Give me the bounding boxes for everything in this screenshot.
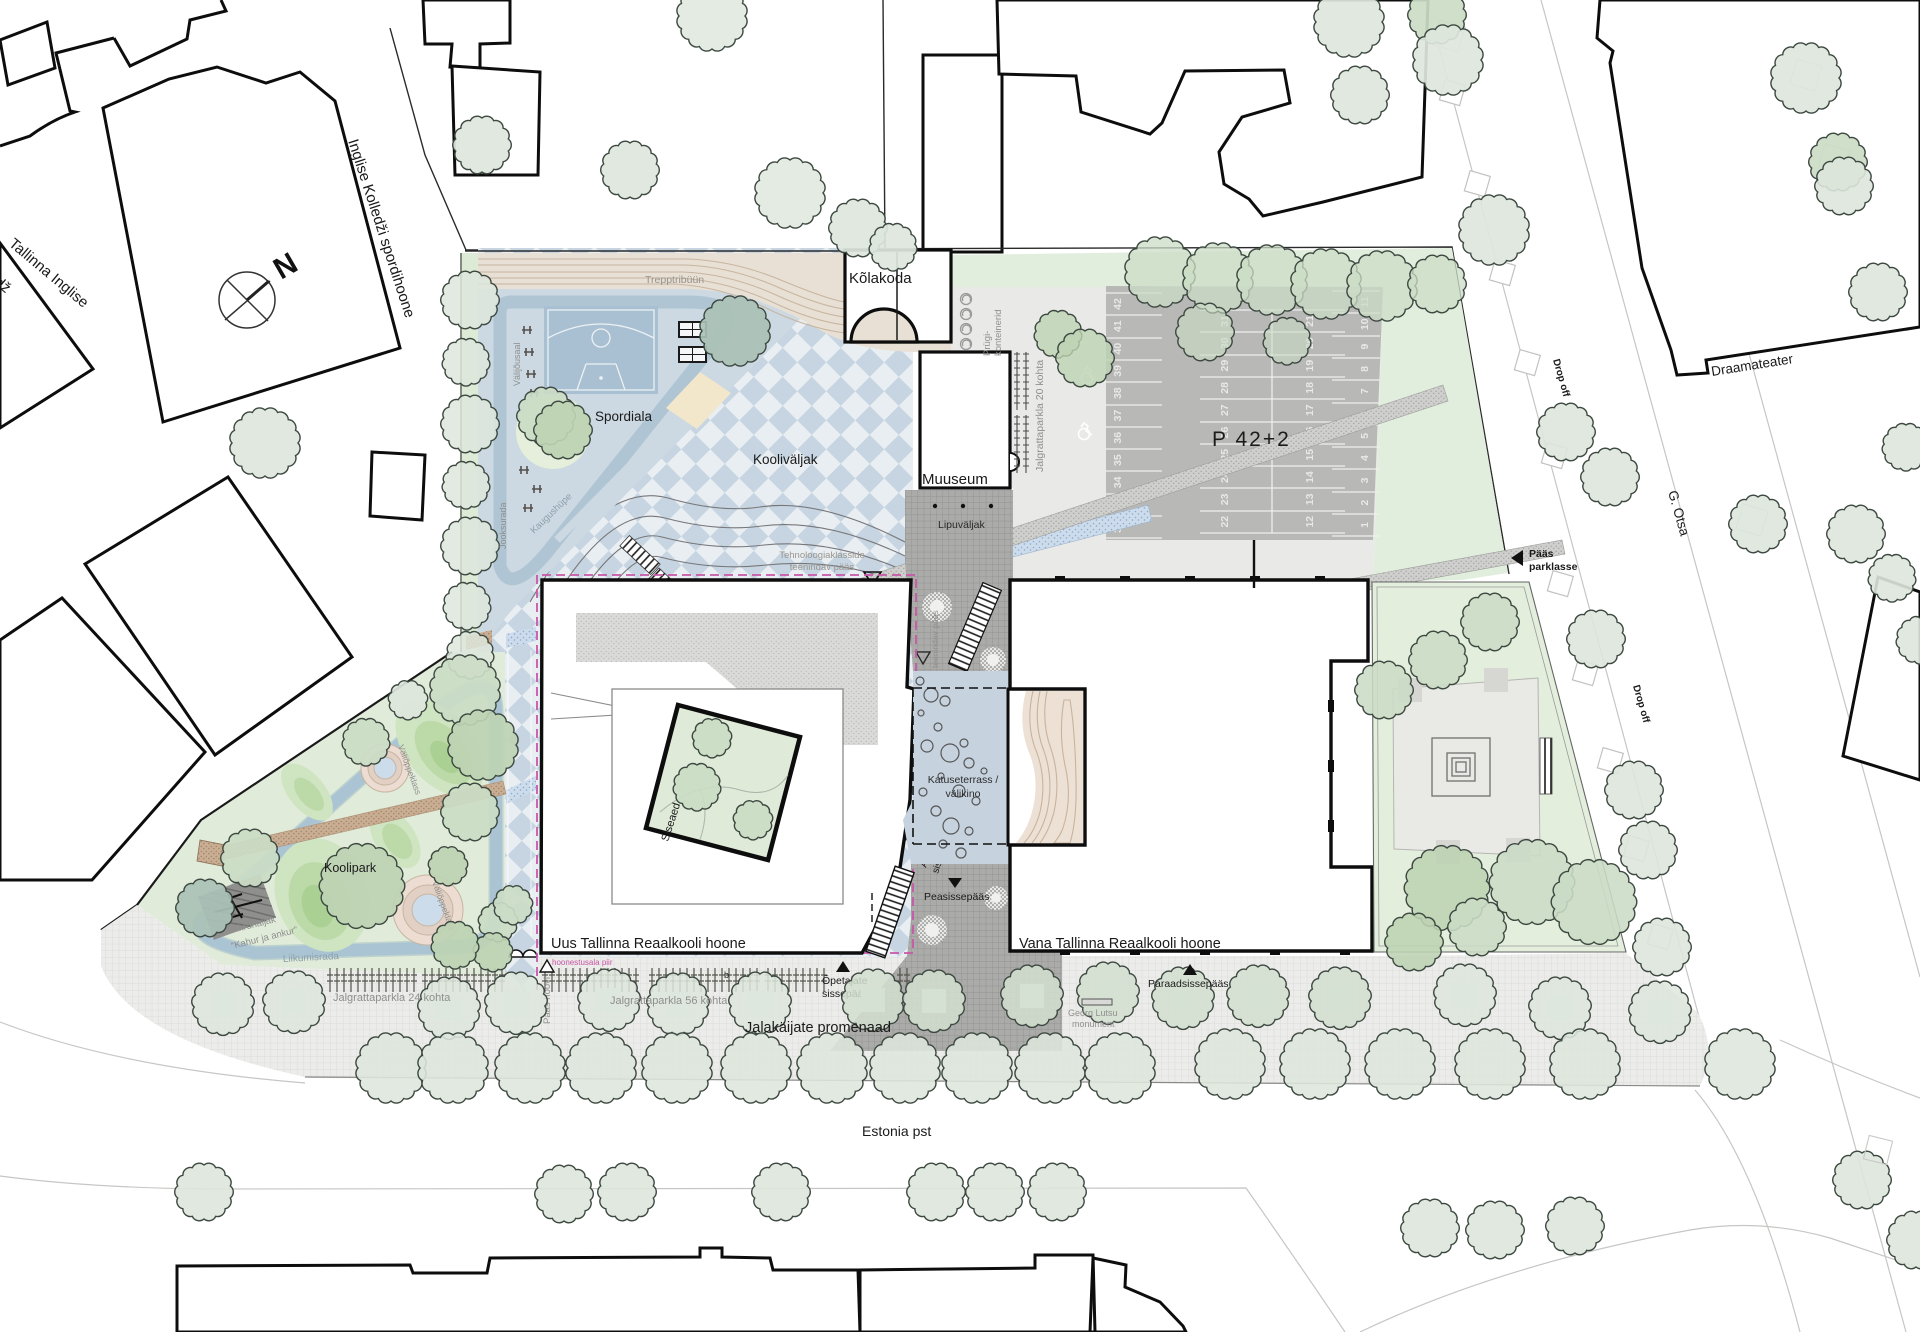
svg-text:7: 7: [1359, 388, 1371, 394]
svg-text:Jalgrattaparkla 20 kohta: Jalgrattaparkla 20 kohta: [1034, 360, 1046, 472]
svg-text:Pääs: Pääs: [1529, 548, 1554, 560]
svg-text:Jooksurada: Jooksurada: [498, 502, 508, 549]
svg-text:8: 8: [1359, 366, 1371, 372]
svg-text:36: 36: [1112, 432, 1124, 444]
svg-text:14: 14: [1304, 471, 1316, 483]
svg-text:37: 37: [1112, 410, 1124, 422]
svg-text:18: 18: [1304, 382, 1316, 394]
svg-text:15: 15: [1304, 449, 1316, 461]
svg-text:22: 22: [1219, 516, 1231, 528]
svg-text:Estonia pst: Estonia pst: [862, 1123, 931, 1139]
svg-text:34: 34: [1112, 476, 1124, 488]
svg-text:teenindav pääs: teenindav pääs: [790, 562, 855, 573]
svg-text:39: 39: [1112, 365, 1124, 377]
svg-text:Tehnoloogiaklasside: Tehnoloogiaklasside: [779, 550, 865, 561]
svg-text:27: 27: [1219, 404, 1231, 416]
svg-text:Uus Tallinna Reaalkooli hoone: Uus Tallinna Reaalkooli hoone: [551, 936, 746, 952]
svg-text:40: 40: [1112, 343, 1124, 355]
svg-text:Välijõusaal: Välijõusaal: [512, 342, 522, 386]
svg-text:Jalgrattaparkla 24 kohta: Jalgrattaparkla 24 kohta: [333, 992, 451, 1004]
svg-text:konteinerid: konteinerid: [993, 310, 1004, 356]
svg-text:5: 5: [1359, 433, 1371, 439]
svg-text:Katuseterrass /: Katuseterrass /: [928, 774, 999, 786]
svg-text:23: 23: [1219, 493, 1231, 505]
svg-text:42: 42: [1112, 298, 1124, 310]
svg-text:28: 28: [1219, 382, 1231, 394]
svg-text:Lipuväljak: Lipuväljak: [938, 519, 985, 531]
svg-text:4: 4: [1359, 455, 1371, 461]
svg-text:parklasse: parklasse: [1529, 561, 1578, 573]
svg-text:10: 10: [1359, 318, 1371, 330]
svg-text:41: 41: [1112, 320, 1124, 332]
svg-text:17: 17: [1304, 404, 1316, 416]
svg-text:P 42+2: P 42+2: [1212, 428, 1291, 451]
svg-text:19: 19: [1304, 360, 1316, 372]
svg-text:9: 9: [1359, 344, 1371, 350]
svg-text:13: 13: [1304, 493, 1316, 505]
svg-text:29: 29: [1219, 360, 1231, 372]
svg-text:Prügi-: Prügi-: [982, 331, 993, 356]
svg-text:Spordiala: Spordiala: [595, 409, 653, 424]
svg-text:teenindav pääs: teenindav pääs: [930, 610, 940, 668]
svg-text:35: 35: [1112, 454, 1124, 466]
svg-text:Paraadsissepääs: Paraadsissepääs: [1148, 978, 1229, 990]
svg-text:Peasissepääs: Peasissepääs: [924, 891, 989, 903]
svg-text:2: 2: [1359, 500, 1371, 506]
svg-text:Muuseum: Muuseum: [922, 471, 988, 488]
svg-text:Koolipark: Koolipark: [324, 861, 377, 875]
svg-text:3: 3: [1359, 477, 1371, 483]
svg-text:Jalgrattaparkla 56 kohta: Jalgrattaparkla 56 kohta: [610, 995, 728, 1007]
svg-text:välikino: välikino: [945, 788, 980, 800]
svg-text:12: 12: [1304, 516, 1316, 528]
svg-text:Trepptribüün: Trepptribüün: [645, 274, 704, 286]
svg-text:Jalakäijate promenaad: Jalakäijate promenaad: [745, 1020, 891, 1036]
svg-text:b: b: [724, 970, 729, 980]
svg-text:hoonestusala piir: hoonestusala piir: [552, 958, 613, 967]
svg-text:38: 38: [1112, 387, 1124, 399]
svg-text:1: 1: [1359, 522, 1371, 528]
svg-text:Kooliväljak: Kooliväljak: [753, 452, 818, 467]
svg-text:Georg Lutsu: Georg Lutsu: [1068, 1008, 1118, 1018]
svg-text:Kõlakoda: Kõlakoda: [849, 270, 912, 287]
svg-text:monument: monument: [1072, 1019, 1115, 1029]
svg-text:Vana Tallinna Reaalkooli hoone: Vana Tallinna Reaalkooli hoone: [1019, 936, 1221, 952]
